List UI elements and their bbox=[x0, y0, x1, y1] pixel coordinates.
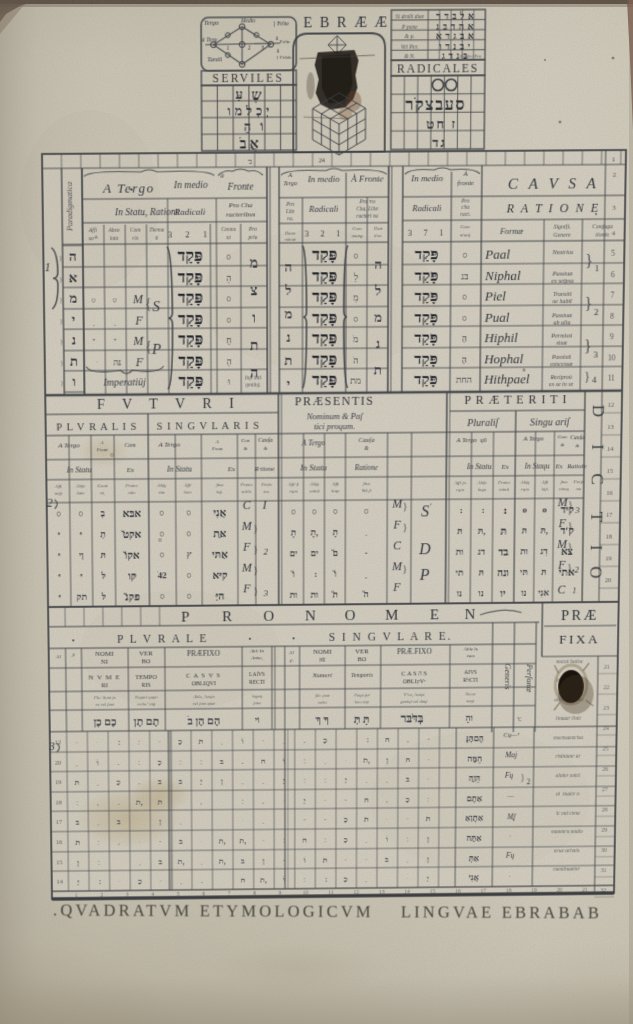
svg-text:Affi ſo: Affi ſo bbox=[453, 481, 466, 486]
svg-text:ה: ה bbox=[374, 257, 382, 272]
svg-text:מ: מ bbox=[250, 256, 258, 272]
svg-text:ſuus: ſuus bbox=[253, 701, 261, 706]
svg-text:F: F bbox=[134, 314, 143, 328]
svg-text:׃: ׃ bbox=[460, 508, 463, 513]
svg-text:הּ: הּ bbox=[241, 876, 246, 884]
svg-text:3: 3 bbox=[261, 45, 264, 52]
svg-text:23: 23 bbox=[603, 705, 609, 712]
svg-text:אבגדא: אבגדא bbox=[436, 32, 478, 42]
svg-text:הּ: הּ bbox=[385, 735, 390, 743]
svg-text:הֵמָּה: הֵמָּה bbox=[467, 754, 482, 763]
svg-text:ות: ות bbox=[311, 591, 319, 601]
svg-text:7: 7 bbox=[611, 291, 615, 300]
svg-text:ract.: ract. bbox=[460, 212, 470, 218]
svg-text:הֶםהָּנֶּ: הֶםהָּנֶּ bbox=[466, 734, 484, 744]
svg-text:אֲבֹ: אֲבֹ bbox=[239, 136, 262, 152]
svg-text:In medio: In medio bbox=[410, 174, 443, 184]
svg-text:Ratione: Ratione bbox=[354, 463, 379, 472]
svg-text:פָּקַד: פָּקַד bbox=[312, 329, 337, 348]
svg-text:Singu ariſ: Singu ariſ bbox=[530, 417, 572, 428]
svg-text:Pro: Pro bbox=[460, 199, 469, 205]
svg-text:27: 27 bbox=[602, 787, 608, 794]
svg-text:In Staųu: In Staųu bbox=[524, 462, 550, 471]
svg-text:15: 15 bbox=[56, 860, 63, 867]
svg-text:ex seipsa: ex seipsa bbox=[552, 278, 574, 285]
svg-text:F: F bbox=[242, 582, 251, 595]
svg-text:6: 6 bbox=[611, 270, 615, 279]
svg-text:Transiti: Transiti bbox=[553, 291, 572, 298]
svg-text:F: F bbox=[242, 540, 251, 553]
svg-text:ן: ן bbox=[427, 855, 429, 863]
svg-text:○: ○ bbox=[160, 592, 165, 602]
svg-text:תּ: תּ bbox=[158, 798, 163, 806]
svg-text:ֵ: ֵ bbox=[93, 325, 95, 326]
svg-text:5: 5 bbox=[611, 249, 615, 258]
svg-text:Tantũ: Tantũ bbox=[207, 56, 223, 63]
svg-text:Cauſa: Cauſa bbox=[570, 434, 585, 441]
svg-text:M: M bbox=[391, 497, 403, 511]
svg-text:Genere: Genere bbox=[553, 232, 571, 239]
svg-text:․: ․ bbox=[117, 759, 120, 767]
svg-text:26: 26 bbox=[602, 766, 608, 773]
svg-text:8: 8 bbox=[610, 312, 614, 321]
svg-text:OBLIקVי: OBLIקVי bbox=[403, 678, 426, 685]
svg-text:Cauſa: Cauſa bbox=[359, 437, 376, 444]
svg-text:Abſq: Abſq bbox=[156, 484, 167, 489]
svg-text:ּ: ּ bbox=[242, 820, 244, 821]
svg-text:ונה: ונה bbox=[497, 568, 509, 580]
svg-text:racteribus: racteribus bbox=[226, 211, 255, 219]
svg-text:ת: ת bbox=[70, 354, 78, 369]
svg-text:אֲנִי: אֲנִי bbox=[469, 873, 480, 882]
svg-text:32: 32 bbox=[600, 888, 606, 895]
svg-text:VER: VER bbox=[139, 650, 153, 658]
svg-text:O: O bbox=[345, 608, 356, 624]
svg-text:concessæ: concessæ bbox=[550, 361, 574, 368]
svg-text:בּ: בּ bbox=[241, 857, 245, 865]
svg-text:הֵןָה: הֵןָה bbox=[469, 773, 481, 782]
svg-text:ָ: ָ bbox=[76, 766, 78, 768]
svg-text:19: 19 bbox=[531, 888, 537, 894]
svg-text:Affi: Affi bbox=[183, 484, 192, 489]
svg-text:{: { bbox=[145, 296, 152, 312]
svg-text:P: P bbox=[419, 566, 430, 584]
svg-text:31: 31 bbox=[601, 867, 607, 874]
svg-text:4: 4 bbox=[612, 229, 616, 237]
svg-text:נ: נ bbox=[286, 330, 290, 345]
svg-text:&: & bbox=[243, 446, 248, 452]
svg-text:3: 3 bbox=[126, 893, 129, 899]
svg-text:ה̆: ה̆ bbox=[362, 590, 369, 601]
svg-text:2: 2 bbox=[594, 308, 599, 318]
svg-text:R: R bbox=[222, 609, 233, 625]
svg-text:NI: NI bbox=[101, 659, 109, 666]
svg-text:10: 10 bbox=[303, 891, 309, 897]
svg-text:נו: נו bbox=[479, 590, 484, 600]
svg-text:פָּקַד: פָּקַד bbox=[178, 309, 203, 328]
svg-text:הּ: הּ bbox=[364, 796, 369, 804]
svg-text:3 7 1: 3 7 1 bbox=[408, 229, 446, 238]
svg-text:}: } bbox=[59, 254, 63, 262]
svg-text:ָ: ָ bbox=[180, 824, 182, 826]
svg-text:S I N G V L A R E.: S I N G V L A R E. bbox=[329, 629, 453, 643]
svg-text:ות: ות bbox=[290, 591, 298, 601]
svg-text:ŋmtinj.: ŋmtinj. bbox=[246, 383, 261, 389]
svg-text:․: ․ bbox=[241, 757, 244, 765]
svg-text:•: • bbox=[72, 637, 75, 646]
svg-text:rtsiniaur ar: rtsiniaur ar bbox=[556, 754, 582, 760]
svg-text:ת: ת bbox=[250, 338, 259, 354]
svg-text:laſs: laſs bbox=[541, 488, 548, 493]
svg-text:פָּקַד: פָּקַד bbox=[178, 288, 203, 307]
svg-text:Comi: Comi bbox=[97, 484, 108, 489]
svg-text:בּ: בּ bbox=[406, 775, 410, 783]
svg-text:תָ,: תָ, bbox=[311, 529, 319, 539]
svg-text:In Statu: In Statu bbox=[466, 462, 492, 471]
svg-text:Deno: Deno bbox=[284, 232, 296, 237]
svg-text:AIVS: AIVS bbox=[464, 670, 477, 676]
svg-text:}: } bbox=[568, 500, 573, 512]
svg-text:luųo: luųo bbox=[478, 488, 487, 493]
svg-text:mĩrls: mĩrls bbox=[242, 490, 252, 495]
svg-text:17: 17 bbox=[606, 512, 613, 519]
svg-text:2: 2 bbox=[527, 778, 531, 786]
svg-text:○: ○ bbox=[186, 530, 191, 540]
svg-text:ת,: ת, bbox=[260, 876, 267, 884]
svg-text:·: · bbox=[324, 796, 326, 804]
svg-text:-: - bbox=[324, 816, 327, 824]
svg-text:&: & bbox=[575, 443, 580, 449]
svg-text:וֹ: וֹ bbox=[386, 835, 388, 843]
svg-text:rųm: rųm bbox=[521, 488, 529, 493]
svg-text:ָ: ָ bbox=[262, 823, 264, 825]
svg-text:D: D bbox=[418, 540, 431, 558]
svg-text:תּ: תּ bbox=[500, 526, 506, 538]
svg-text:à Terg: à Terg bbox=[202, 36, 217, 43]
svg-text:Abſo: Abſo bbox=[75, 485, 86, 490]
svg-text:ַ: ַ bbox=[365, 535, 367, 536]
svg-text:iuj.: iuj. bbox=[216, 490, 222, 495]
svg-text:○: ○ bbox=[226, 253, 232, 263]
svg-text:TEMPO: TEMPO bbox=[135, 674, 157, 681]
svg-text:יּ: יּ bbox=[79, 572, 82, 582]
svg-text:24: 24 bbox=[603, 725, 610, 732]
svg-text:בּ: בּ bbox=[179, 837, 183, 845]
svg-text:פָּקַד: פָּקַד bbox=[312, 308, 337, 327]
svg-text:Duplici Præ: Duplici Præ bbox=[460, 55, 482, 60]
svg-text:ים: ים bbox=[311, 549, 319, 559]
svg-text:ן: ן bbox=[77, 859, 79, 867]
svg-text:15: 15 bbox=[607, 468, 614, 475]
svg-text:הָּ: הָּ bbox=[462, 356, 467, 366]
svg-text:luto: luto bbox=[110, 236, 119, 242]
svg-text:וֹי: וֹי bbox=[255, 716, 260, 725]
svg-text:פָּקַד: פָּקַד bbox=[414, 371, 438, 388]
svg-text:-: - bbox=[283, 856, 286, 864]
svg-text:}: } bbox=[584, 370, 590, 384]
svg-text:הֶם הֶן בֹ: הֶם הֶן בֹ bbox=[187, 716, 220, 728]
svg-text:Paal: Paal bbox=[484, 247, 510, 262]
svg-text:racteri va: racteri va bbox=[356, 214, 378, 220]
svg-text:RלCTI: RלCTI bbox=[463, 677, 478, 684]
svg-text:דִנ: דִנ bbox=[540, 547, 548, 557]
svg-text:Fronte: Fronte bbox=[227, 182, 254, 193]
svg-text:כָ: כָ bbox=[344, 815, 348, 823]
svg-text:Pro יro: Pro יro bbox=[358, 199, 375, 205]
svg-text:כָ: כָ bbox=[344, 875, 348, 883]
svg-text:Mַſ: Mַſ bbox=[506, 813, 517, 821]
svg-text:RADICALES: RADICALES bbox=[397, 61, 479, 76]
svg-text:2ּ4: 2ּ4 bbox=[319, 157, 326, 164]
svg-text:ו: ו bbox=[72, 374, 76, 389]
svg-text:} Frõte: } Frõte bbox=[273, 21, 289, 27]
svg-text:30: 30 bbox=[601, 847, 607, 854]
svg-text:moomru ooalo: moomru ooalo bbox=[551, 830, 583, 836]
svg-text:׃: ׃ bbox=[482, 508, 485, 513]
svg-text:א: א bbox=[69, 270, 78, 285]
svg-text:14: 14 bbox=[404, 890, 410, 896]
svg-text:D: D bbox=[589, 405, 608, 418]
svg-text:פָּקַד: פָּקַד bbox=[178, 246, 203, 265]
svg-text:Vel Per.: Vel Per. bbox=[401, 44, 418, 50]
svg-text:ַ: ַ bbox=[139, 864, 141, 865]
svg-text:בְּדֹּּבּר: בְּדֹּּבּר bbox=[401, 712, 424, 726]
svg-text:BO: BO bbox=[142, 659, 151, 666]
svg-text:תּ: תּ bbox=[426, 815, 431, 823]
svg-text:2: 2 bbox=[101, 893, 104, 899]
svg-text:M: M bbox=[556, 537, 568, 550]
svg-text:S: S bbox=[421, 502, 430, 520]
svg-text:אקט̆: אקט̆ bbox=[121, 529, 142, 541]
svg-text:S: S bbox=[152, 298, 160, 315]
svg-text:פָּקַד: פָּקַד bbox=[414, 330, 438, 347]
svg-text:}: } bbox=[60, 379, 63, 387]
svg-text:·: · bbox=[406, 815, 408, 823]
svg-text:ב̆: ב̆ bbox=[247, 158, 253, 166]
svg-text:À Fronte: À Fronte bbox=[350, 173, 383, 185]
svg-text:בּ: בּ bbox=[220, 758, 224, 766]
svg-text:NOMI: NOMI bbox=[95, 650, 114, 658]
svg-text:תּ: תּ bbox=[457, 527, 463, 537]
svg-text:}: } bbox=[584, 337, 592, 356]
svg-text:4: 4 bbox=[152, 892, 155, 898]
svg-text:ם̆: ם̆ bbox=[331, 548, 339, 559]
svg-text:ַ: ַ bbox=[406, 862, 408, 863]
svg-text:Com: Com bbox=[460, 224, 470, 230]
svg-text:לּ: לּ bbox=[100, 571, 105, 582]
svg-text:Com: Com bbox=[558, 434, 568, 440]
svg-text:ים: ים bbox=[290, 550, 298, 560]
svg-text:ַ: ַ bbox=[365, 842, 367, 843]
svg-text:·: · bbox=[262, 737, 264, 745]
svg-text:○: ○ bbox=[159, 509, 165, 519]
svg-text:mscnsaeecisa: mscnsaeecisa bbox=[554, 735, 584, 741]
svg-text:P L V R A L E: P L V R A L E bbox=[117, 632, 208, 646]
svg-text:○: ○ bbox=[353, 315, 359, 325]
svg-text:ֵ: ֵ bbox=[114, 325, 116, 326]
svg-text::: : bbox=[304, 875, 306, 883]
svg-text:Radicali: Radicali bbox=[174, 208, 206, 218]
svg-text::: : bbox=[242, 797, 244, 805]
svg-text:lnuaar iluic: lnuaar iluic bbox=[556, 716, 582, 722]
svg-text:Abla, Acuſa: Abla, Acuſa bbox=[192, 695, 215, 700]
svg-text:○: ○ bbox=[187, 592, 192, 602]
svg-text:rųm: rųm bbox=[456, 488, 464, 493]
svg-text:—: — bbox=[506, 792, 515, 800]
svg-text:ue habil: ue habil bbox=[552, 298, 572, 305]
svg-text:luto: luto bbox=[77, 492, 85, 497]
svg-text:N: N bbox=[305, 608, 316, 624]
svg-text:-: - bbox=[365, 549, 368, 559]
svg-text::: : bbox=[304, 757, 306, 765]
svg-text:2: 2 bbox=[613, 171, 617, 179]
svg-text:S I N G V L A R I S: S I N G V L A R I S bbox=[157, 420, 260, 432]
svg-text:vel ſunt quæ: vel ſunt quæ bbox=[193, 702, 216, 707]
svg-text:F: F bbox=[393, 518, 402, 531]
svg-text:tum: tum bbox=[467, 653, 475, 659]
svg-text:Abſq: Abſq bbox=[309, 483, 319, 488]
svg-text::: : bbox=[138, 738, 140, 746]
svg-text:יּ: יּ bbox=[57, 552, 60, 562]
svg-text:Cauſa: Cauſa bbox=[258, 437, 273, 444]
svg-text:Cų—י: Cų—י bbox=[503, 731, 519, 739]
svg-text:הֻ: הֻ bbox=[226, 358, 231, 368]
svg-text:}: } bbox=[253, 544, 258, 556]
svg-text:תְ: תְ bbox=[100, 530, 106, 540]
svg-text:naųi: naųi bbox=[466, 699, 475, 704]
svg-text:יָ: יָ bbox=[200, 777, 202, 785]
svg-text:minat: minat bbox=[285, 238, 297, 243]
svg-text:,: , bbox=[386, 796, 388, 804]
svg-text:יָ: יָ bbox=[345, 776, 347, 784]
svg-text:מ: מ bbox=[69, 291, 77, 306]
svg-text:וֹ: וֹ bbox=[260, 120, 263, 134]
svg-text:Pro: Pro bbox=[285, 202, 294, 208]
svg-text:C: C bbox=[393, 539, 402, 552]
svg-text:Vel ſi: Vel ſi bbox=[362, 489, 372, 494]
svg-text:○: ○ bbox=[364, 507, 369, 517]
svg-text:à: à bbox=[275, 35, 278, 42]
svg-text:21: 21 bbox=[604, 664, 610, 671]
svg-text:Nominum & Paſ: Nominum & Paſ bbox=[306, 411, 364, 421]
svg-text:צ: צ bbox=[250, 283, 258, 299]
svg-text:בּ: בּ bbox=[179, 777, 183, 785]
svg-text:פָּקַד: פָּקַד bbox=[312, 267, 337, 286]
svg-text:11: 11 bbox=[608, 374, 615, 383]
svg-text:○: ○ bbox=[159, 551, 164, 561]
svg-text:בּנ: בּנ bbox=[461, 272, 469, 282]
svg-text:}: } bbox=[59, 275, 63, 283]
svg-text:Affi ſi: Affi ſi bbox=[287, 483, 299, 488]
svg-text:}: } bbox=[584, 294, 592, 313]
svg-text:Plu: Sunt ſu: Plu: Sunt ſu bbox=[93, 696, 116, 701]
svg-text:אַּת: אַּת bbox=[213, 528, 226, 540]
svg-text:20: 20 bbox=[557, 888, 563, 894]
svg-text:F: F bbox=[135, 355, 144, 369]
svg-text:אלבדר: אלבדר bbox=[436, 11, 477, 22]
svg-text:ּ: ּ bbox=[139, 841, 141, 842]
svg-text:Cha, Libe: Cha, Libe bbox=[356, 206, 378, 212]
svg-text:pria: pria bbox=[247, 235, 257, 241]
svg-text:3 2 1: 3 2 1 bbox=[305, 229, 343, 238]
svg-text:Reciproù: Reciproù bbox=[549, 374, 572, 381]
svg-text:Anim,: Anim, bbox=[250, 655, 263, 661]
svg-text:וֹ: וֹ bbox=[283, 876, 285, 884]
svg-text:ſine: ſine bbox=[363, 482, 371, 487]
svg-text:à: à bbox=[277, 48, 280, 55]
svg-text:׃: ׃ bbox=[99, 879, 101, 884]
svg-text:בּ: בּ bbox=[117, 818, 121, 826]
svg-text:תָ: תָ bbox=[291, 529, 296, 539]
svg-text:○: ○ bbox=[462, 293, 468, 303]
svg-text:׃: ׃ bbox=[314, 572, 317, 577]
svg-text:ſine: ſine bbox=[216, 483, 224, 488]
svg-text:Perſo: Perſo bbox=[260, 483, 272, 488]
svg-text:פָּקַד: פָּקַד bbox=[312, 370, 337, 389]
svg-text:Connu: Connu bbox=[221, 227, 236, 233]
svg-text:אַתֶם: אַתֶם bbox=[467, 794, 483, 804]
svg-text:ז חט: ז חט bbox=[426, 116, 457, 131]
svg-text:כָ: כָ bbox=[406, 795, 410, 803]
svg-text:}: } bbox=[253, 586, 258, 597]
svg-text:Paradigmatica: Paradigmatica bbox=[65, 182, 74, 232]
svg-text:raeuituaetnr: raeuituaetnr bbox=[553, 867, 581, 873]
svg-text:Nomi: Nomi bbox=[465, 693, 476, 698]
svg-text:A Tergo: A Tergo bbox=[301, 439, 325, 448]
svg-text:,: , bbox=[200, 798, 202, 806]
svg-text:ּ: ּ bbox=[96, 742, 98, 743]
svg-text:ָ: ָ bbox=[242, 783, 244, 785]
svg-text:עַּ: עַּ bbox=[235, 87, 243, 102]
svg-text:ן: ן bbox=[386, 756, 388, 764]
svg-text:החת: החת bbox=[456, 376, 472, 386]
svg-text:הֵ: הֵ bbox=[226, 274, 231, 284]
svg-text:tise.: tise. bbox=[374, 233, 382, 239]
svg-text:○: ○ bbox=[186, 571, 191, 581]
svg-text:,: , bbox=[97, 799, 99, 807]
svg-text:תּ: תּ bbox=[323, 856, 328, 864]
svg-text:I: I bbox=[587, 545, 606, 551]
svg-text:}: } bbox=[60, 317, 63, 325]
svg-text:○: ○ bbox=[333, 507, 338, 517]
svg-text:C A S ה S: C A S ה S bbox=[402, 671, 428, 678]
svg-text:À: À bbox=[463, 168, 469, 178]
svg-text:Vיca, Acuſa: Vיca, Acuſa bbox=[404, 692, 426, 698]
svg-text:כָ: כָ bbox=[116, 778, 120, 786]
svg-text:Abſq: Abſq bbox=[520, 481, 531, 486]
svg-text::: : bbox=[179, 758, 181, 766]
svg-text:Hophal: Hophal bbox=[483, 351, 523, 366]
svg-text:o: o bbox=[542, 506, 547, 516]
svg-text:minũ: minũ bbox=[499, 488, 509, 493]
svg-text:ra.: ra. bbox=[287, 216, 293, 222]
svg-text:3: 3 bbox=[612, 204, 616, 212]
svg-text:RECTI: RECTI bbox=[249, 680, 265, 686]
svg-text:ַ: ַ bbox=[324, 763, 326, 764]
svg-text:siuæ: siuæ bbox=[556, 340, 568, 347]
svg-text:ָ: ָ bbox=[221, 744, 223, 746]
svg-text:·: · bbox=[344, 856, 346, 864]
svg-text::: : bbox=[283, 836, 285, 844]
svg-text:Aƒ: Aƒ bbox=[55, 654, 62, 660]
svg-text:ן: ן bbox=[427, 835, 429, 843]
svg-text:Tergo: Tergo bbox=[283, 180, 297, 187]
svg-text:אַתָּה: אַתָּה bbox=[466, 833, 482, 842]
svg-text:○: ○ bbox=[291, 508, 296, 518]
svg-text:}: } bbox=[402, 522, 407, 534]
svg-text:1: 1 bbox=[572, 587, 576, 596]
svg-text:לֵ: לֵ bbox=[353, 272, 358, 283]
